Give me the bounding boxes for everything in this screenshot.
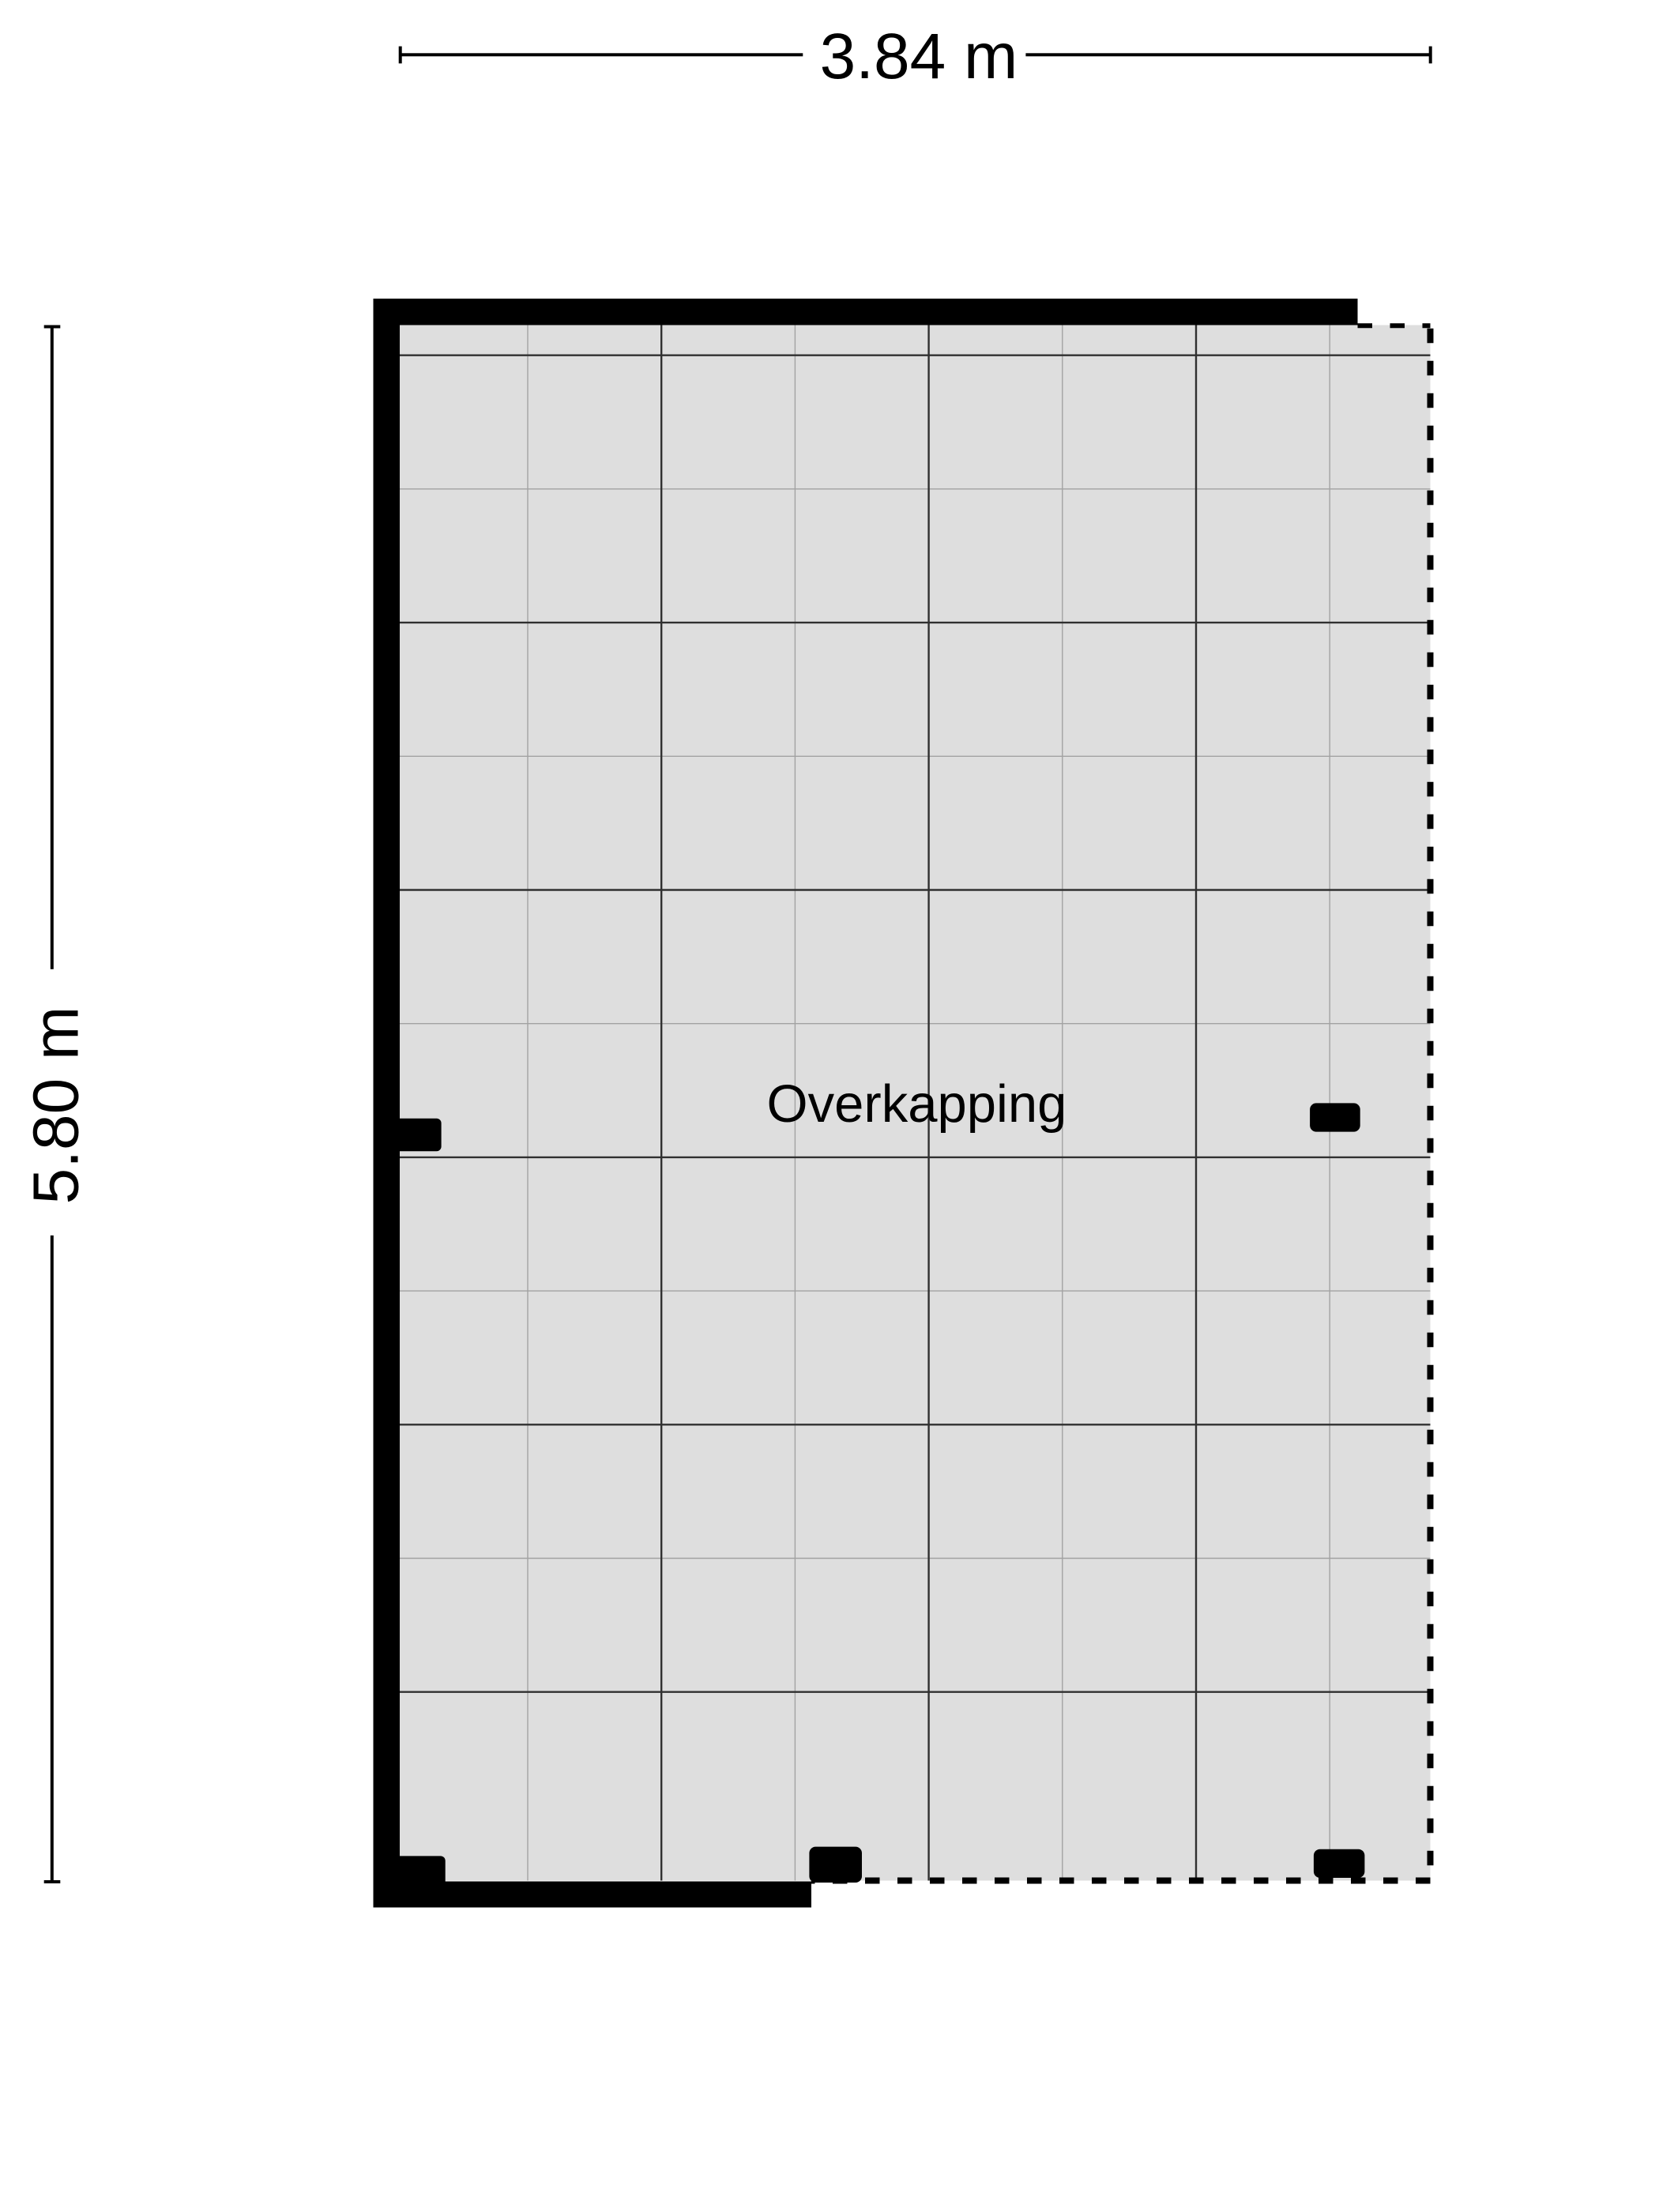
svg-text:Overkapping: Overkapping: [767, 1074, 1067, 1134]
svg-text:3.84 m: 3.84 m: [820, 21, 1018, 92]
svg-text:5.80 m: 5.80 m: [21, 1006, 92, 1205]
